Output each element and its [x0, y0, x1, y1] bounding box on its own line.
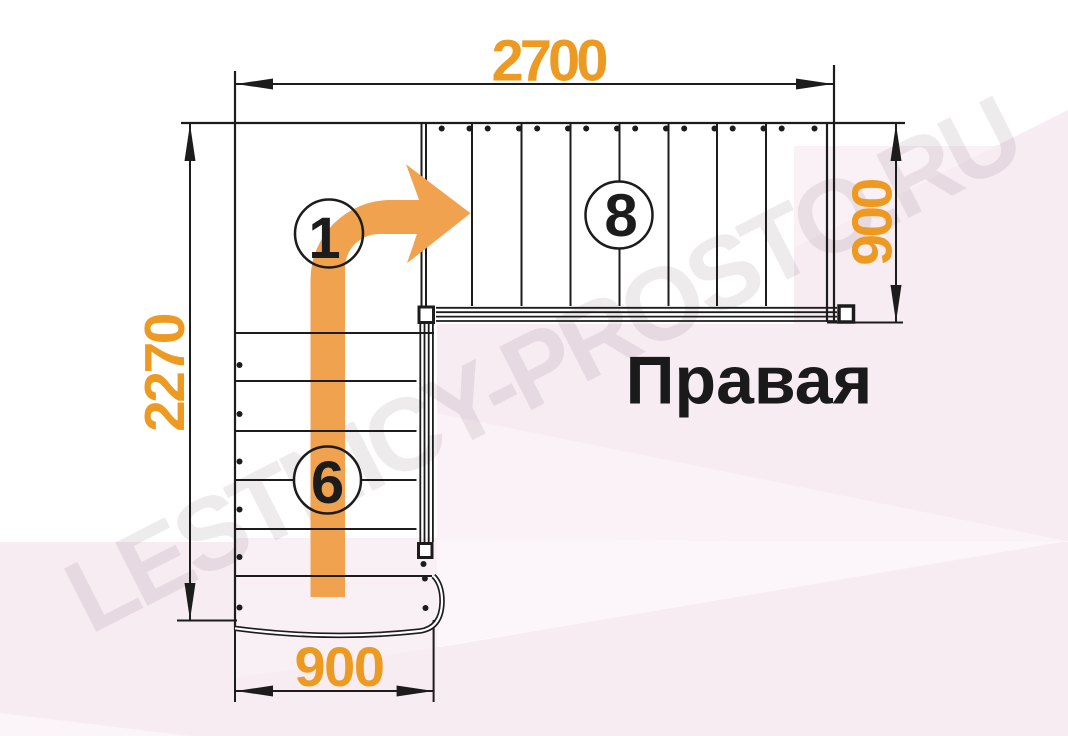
svg-text:2700: 2700: [491, 29, 606, 94]
svg-text:Правая: Правая: [626, 343, 873, 419]
svg-text:1: 1: [308, 206, 340, 271]
svg-text:2270: 2270: [133, 314, 197, 432]
svg-text:6: 6: [311, 449, 344, 516]
svg-text:8: 8: [604, 182, 637, 249]
svg-text:900: 900: [295, 635, 384, 698]
svg-text:900: 900: [841, 179, 905, 265]
